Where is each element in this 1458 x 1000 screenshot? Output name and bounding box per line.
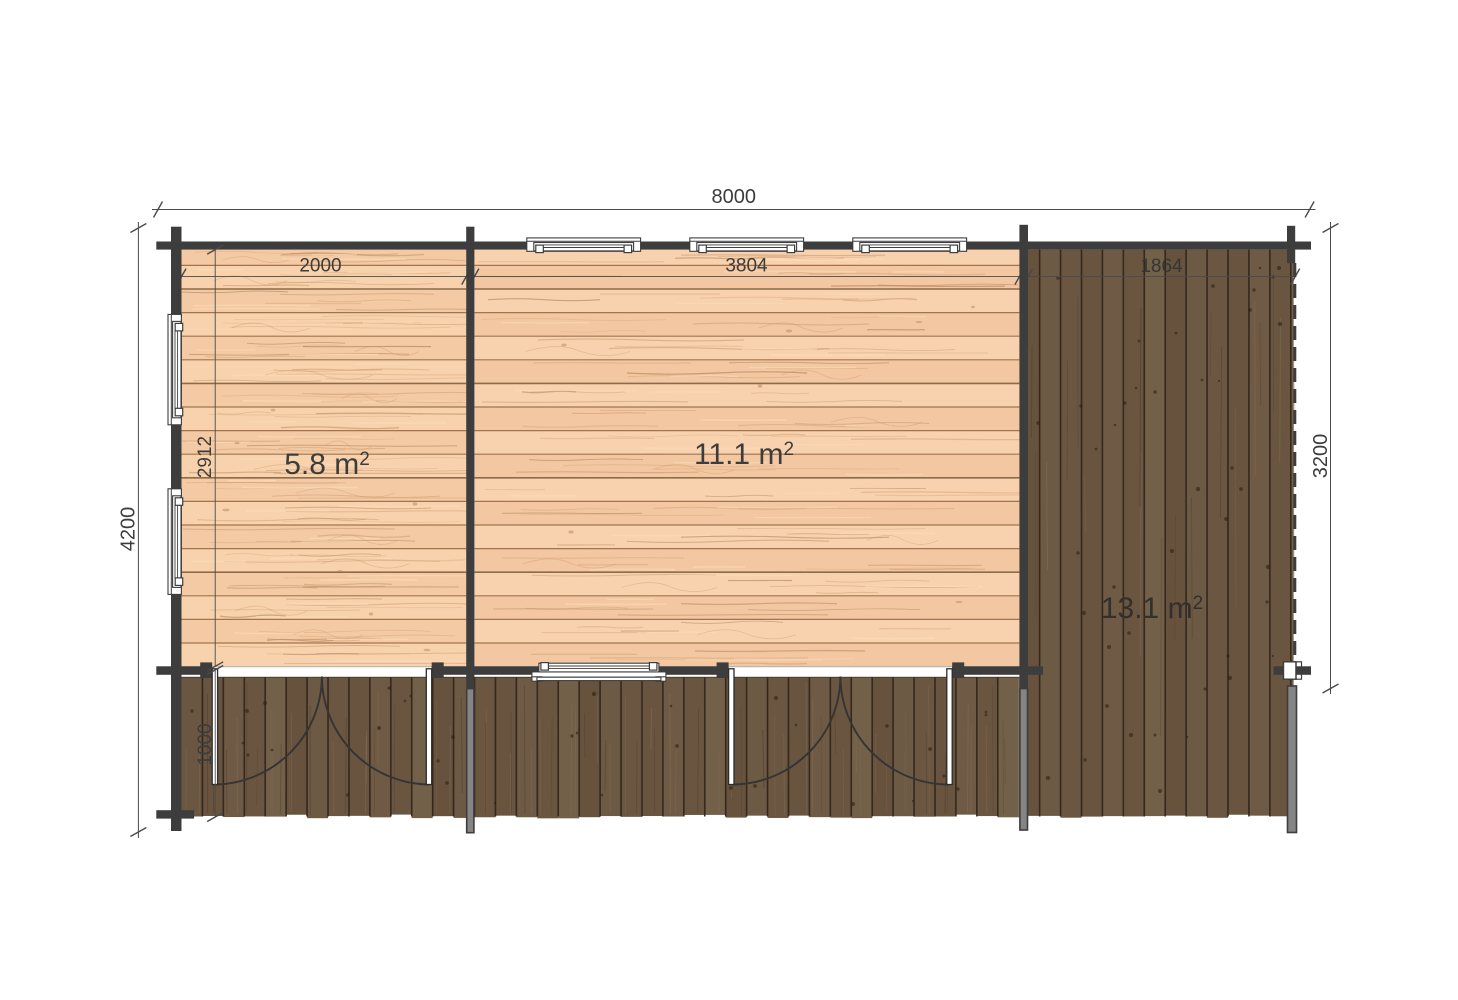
svg-text:3200: 3200	[1310, 434, 1332, 479]
svg-text:13.1 m2: 13.1 m2	[1101, 592, 1203, 625]
svg-text:4200: 4200	[118, 507, 140, 552]
svg-text:11.1 m2: 11.1 m2	[694, 438, 794, 471]
svg-text:1000: 1000	[195, 723, 216, 765]
svg-text:8000: 8000	[712, 186, 757, 208]
svg-text:5.8 m2: 5.8 m2	[284, 448, 370, 481]
svg-text:1864: 1864	[1140, 256, 1183, 277]
svg-text:3804: 3804	[725, 256, 768, 277]
svg-text:2912: 2912	[195, 436, 216, 478]
svg-text:2000: 2000	[299, 256, 341, 277]
